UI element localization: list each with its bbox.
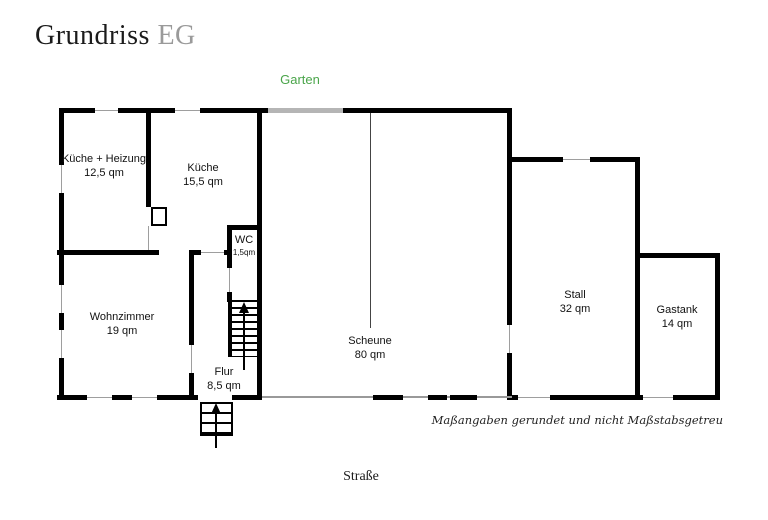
chimney-box <box>151 207 167 226</box>
window <box>643 395 673 400</box>
entrance-arrow <box>215 412 217 448</box>
window <box>87 395 112 400</box>
scheune-divider-line <box>370 113 371 328</box>
scheune-bottom-pier <box>450 395 477 400</box>
wall-gastank-right <box>715 253 720 400</box>
room-label-wohnzimmer: Wohnzimmer 19 qm <box>90 310 155 338</box>
wall-kitchen-divider <box>146 108 151 207</box>
wall-stall-right <box>635 157 640 400</box>
room-name: WC <box>235 234 253 246</box>
room-name: Flur <box>215 366 234 378</box>
window <box>518 395 550 400</box>
entrance-door-opening <box>198 395 232 400</box>
window <box>563 157 590 162</box>
door-opening <box>146 226 151 250</box>
room-name: Scheune <box>348 335 391 347</box>
room-label-gastank: Gastank 14 qm <box>657 303 698 331</box>
room-label-kueche-heizung: Küche + Heizung 12,5 qm <box>62 152 146 180</box>
room-name: Wohnzimmer <box>90 311 155 323</box>
street-label: Straße <box>343 469 379 485</box>
barn-door <box>268 108 343 113</box>
scheune-bottom-pier <box>428 395 447 400</box>
room-name: Küche + Heizung <box>62 153 146 165</box>
title-suffix: EG <box>157 20 195 51</box>
disclaimer-note: Maßangaben gerundet und nicht Maßstabsge… <box>432 413 723 427</box>
window <box>507 325 512 353</box>
stairs-arrow <box>243 311 245 370</box>
stairs-arrow-head <box>239 302 249 313</box>
room-area: 19 qm <box>90 324 155 338</box>
room-label-wc: WC 1,5qm <box>233 233 255 258</box>
wall-kueche-scheune <box>257 108 262 400</box>
room-label-scheune: Scheune 80 qm <box>348 334 391 362</box>
door-opening <box>201 250 224 255</box>
room-name: Gastank <box>657 304 698 316</box>
window <box>95 108 118 113</box>
wall-gastank-top <box>635 253 720 258</box>
room-label-stall: Stall 32 qm <box>560 288 591 316</box>
window <box>59 285 64 313</box>
garden-label: Garten <box>280 72 320 87</box>
wall-scheune-right <box>507 108 512 400</box>
title-main: Grundriss <box>35 20 150 51</box>
room-area: 1,5qm <box>233 247 255 258</box>
window <box>132 395 157 400</box>
room-name: Küche <box>187 162 218 174</box>
entrance-arrow-head <box>211 403 221 414</box>
scheune-bottom-pier <box>373 395 403 400</box>
room-area: 80 qm <box>348 348 391 362</box>
room-name: Stall <box>564 289 585 301</box>
room-area: 8,5 qm <box>207 379 241 393</box>
room-area: 14 qm <box>657 317 698 331</box>
door-opening <box>227 268 232 292</box>
window <box>59 330 64 358</box>
room-area: 15,5 qm <box>183 175 223 189</box>
room-area: 32 qm <box>560 302 591 316</box>
door-opening <box>159 250 189 255</box>
window <box>175 108 200 113</box>
wall-wc-top <box>227 225 262 230</box>
door-opening <box>189 345 194 373</box>
page-title: Grundriss EG <box>35 20 196 52</box>
wall-wohnzimmer-flur <box>189 250 194 400</box>
room-label-kueche: Küche 15,5 qm <box>183 161 223 189</box>
floor-plan: Grundriss EG Garten Straße Maßangaben ge… <box>0 0 768 520</box>
room-label-flur: Flur 8,5 qm <box>207 365 241 393</box>
room-area: 12,5 qm <box>62 166 146 180</box>
